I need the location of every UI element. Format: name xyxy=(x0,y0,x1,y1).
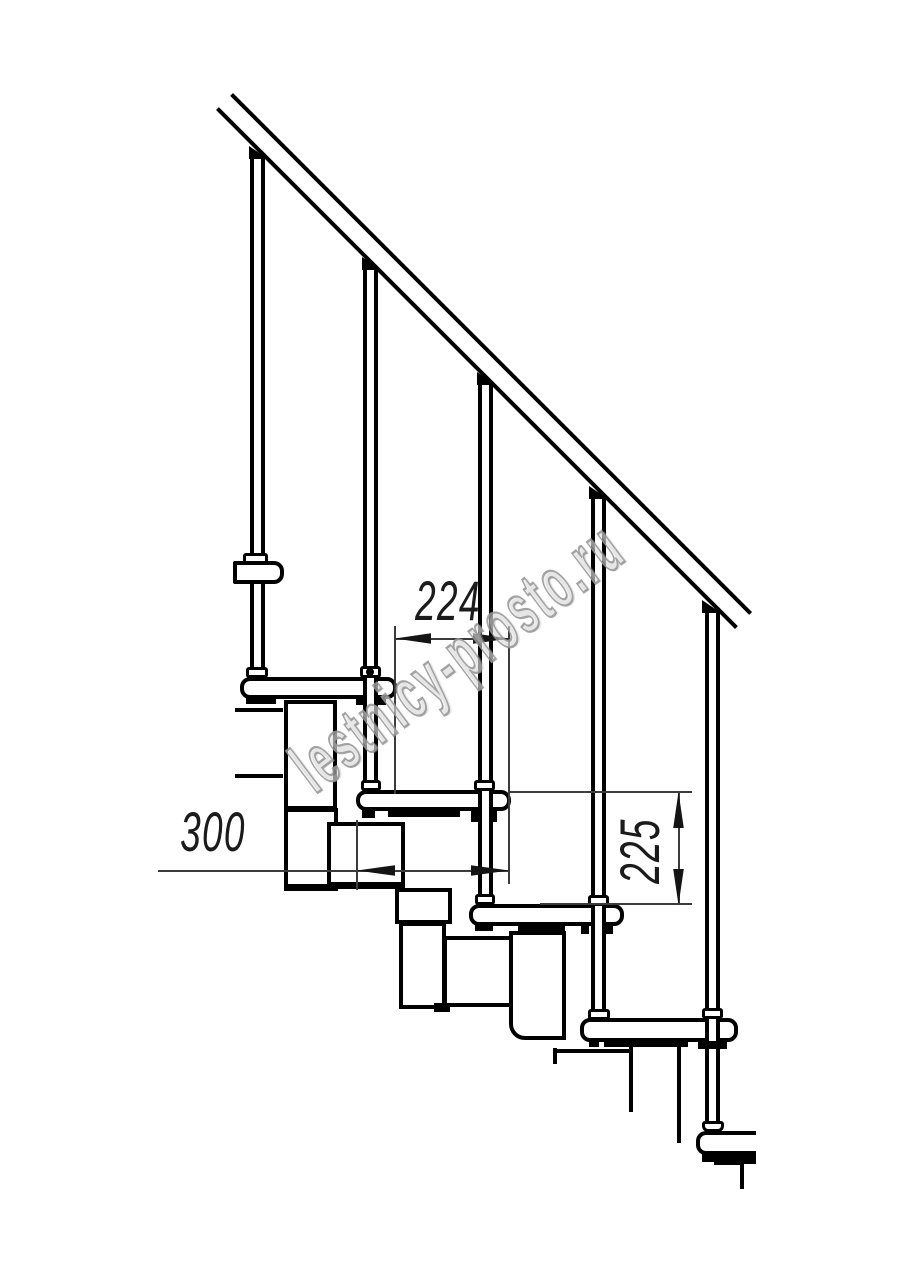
tread-foot xyxy=(589,1041,599,1047)
drawing-canvas: 224 300 225 lestnicy-prosto.ru xyxy=(0,0,914,1280)
baluster-5-base xyxy=(702,1121,724,1132)
stringer-module-d1 xyxy=(395,888,452,924)
baluster-1 xyxy=(250,158,265,677)
stringer-module-f xyxy=(509,931,566,1040)
tread-foot xyxy=(471,810,479,822)
tread-foot xyxy=(605,925,613,934)
tread-foot xyxy=(362,810,375,818)
dim-225-extension-bottom xyxy=(540,903,692,905)
tread-foot xyxy=(518,924,565,932)
dim-225-label: 225 xyxy=(612,818,668,884)
site-watermark: lestnicy-prosto.ru xyxy=(276,506,640,809)
tread-foot xyxy=(702,1154,734,1162)
tread-foot xyxy=(388,809,460,817)
tread-6-cut xyxy=(696,1131,756,1155)
dim-225-arrowhead-up xyxy=(673,792,684,828)
baluster-5 xyxy=(705,611,720,1131)
baluster-5-ring xyxy=(702,1008,723,1019)
dim-225-arrowhead-down xyxy=(673,869,684,905)
baluster-3-ring xyxy=(474,780,495,791)
baluster-1-base xyxy=(246,667,268,678)
tread-foot xyxy=(698,1041,727,1049)
stringer-module-h-line xyxy=(740,1161,744,1189)
dim-300-line xyxy=(158,870,510,872)
stringer-module-g-line xyxy=(629,1046,633,1112)
tread-foot xyxy=(489,810,497,822)
stringer-module-d2 xyxy=(399,922,446,1009)
tread-foot xyxy=(475,924,493,931)
baluster-4-base xyxy=(588,1009,610,1020)
tread-foot xyxy=(581,925,589,934)
dim-300-label: 300 xyxy=(180,804,246,860)
baluster-2-base xyxy=(361,780,381,791)
tread-foot xyxy=(246,696,276,704)
stringer-module-e xyxy=(443,936,517,1007)
tread-foot xyxy=(616,1040,688,1047)
tread-1-stub xyxy=(233,561,284,584)
stringer-module-g-line xyxy=(553,1049,633,1053)
baluster-1-stub-ring xyxy=(243,553,268,564)
tread-foot xyxy=(734,1154,756,1164)
baluster-3-base xyxy=(475,894,495,905)
stringer-module-g-line xyxy=(677,1042,681,1143)
stringer-module-c xyxy=(327,822,405,889)
dim-300-extension-left xyxy=(356,820,358,890)
dim-225-extension-top xyxy=(508,791,692,793)
